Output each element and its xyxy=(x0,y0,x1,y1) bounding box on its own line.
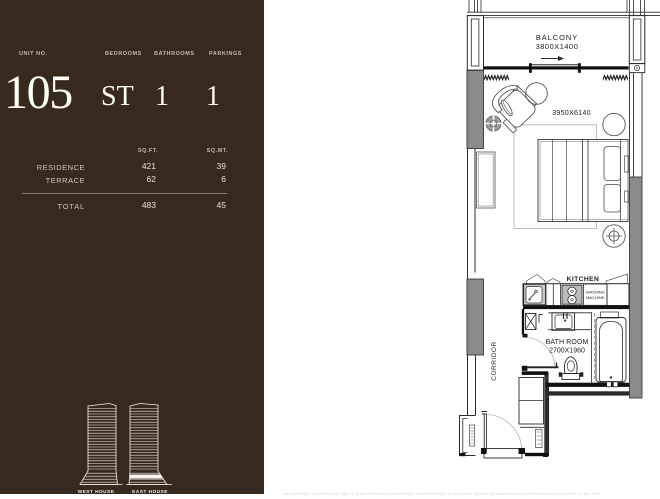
svg-text:BALCONY: BALCONY xyxy=(536,33,578,42)
svg-text:WASHING: WASHING xyxy=(586,290,605,295)
svg-text:2700X1960: 2700X1960 xyxy=(549,348,585,355)
svg-text:MACHINE: MACHINE xyxy=(586,295,605,300)
svg-text:BATH ROOM: BATH ROOM xyxy=(546,339,589,346)
svg-text:CORRIDOR: CORRIDOR xyxy=(491,341,498,380)
svg-text:3800X1400: 3800X1400 xyxy=(536,42,579,51)
svg-text:3950X6140: 3950X6140 xyxy=(552,109,591,117)
svg-text:KITCHEN: KITCHEN xyxy=(567,276,600,283)
